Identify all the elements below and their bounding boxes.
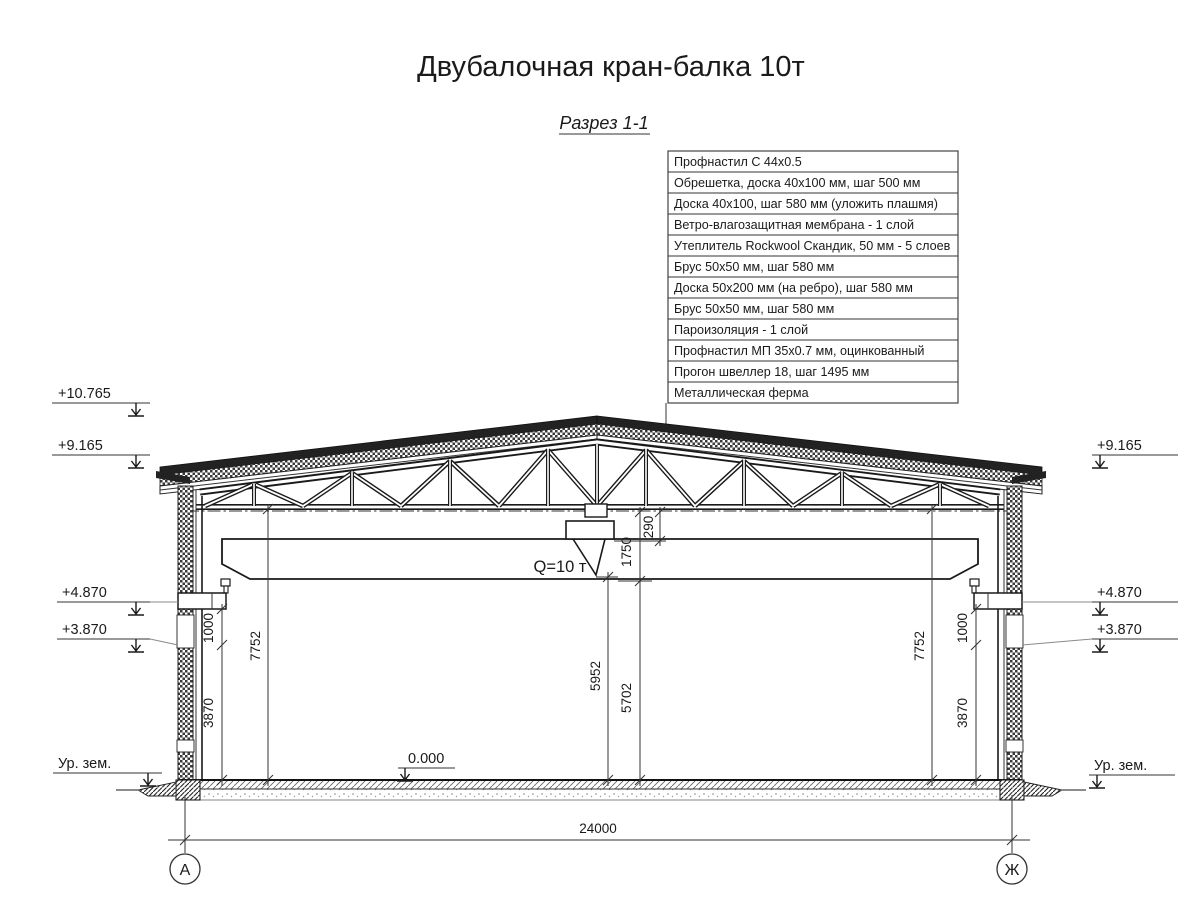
wall-left-joint xyxy=(177,615,194,648)
rail-mount-plate xyxy=(585,504,607,517)
dim-beam-zone: 1750 xyxy=(619,537,634,567)
spec-row: Доска 50х200 мм (на ребро), шаг 580 мм xyxy=(674,281,913,295)
elev-right-corbel: +3.870 xyxy=(1097,622,1142,638)
dim-truss-clearance-left: 7752 xyxy=(248,631,263,661)
floor-base xyxy=(196,789,1004,800)
crane-wheel-right xyxy=(970,579,979,586)
dim-rail-to-corbel-right: 1000 xyxy=(955,613,970,643)
crane-bridge: Q=10 т xyxy=(178,521,1022,609)
grid-axes: А Ж xyxy=(170,854,1027,884)
spec-row: Пароизоляция - 1 слой xyxy=(674,323,808,337)
elev-floor-zero: 0.000 xyxy=(408,751,444,767)
dim-hook-height: 5952 xyxy=(588,661,603,691)
apron-right xyxy=(1024,782,1062,796)
spec-row: Утеплитель Rockwool Скандик, 50 мм - 5 с… xyxy=(674,239,951,253)
dim-corbel-to-floor-left: 3870 xyxy=(201,698,216,728)
crane-wheel-left xyxy=(221,579,230,586)
spec-row: Профнастил МП 35х0.7 мм, оцинкованный xyxy=(674,344,924,358)
floor-screed xyxy=(178,780,1022,789)
floor xyxy=(116,780,1086,800)
drawing-sheet: Двубалочная кран-балка 10т Разрез 1-1 Пр… xyxy=(0,0,1200,900)
apron-left xyxy=(138,782,176,796)
spec-row: Обрешетка, доска 40х100 мм, шаг 500 мм xyxy=(674,176,920,190)
section-label: Разрез 1-1 xyxy=(559,113,648,133)
wall-left-joint-2 xyxy=(177,740,194,752)
runway-corbel-right xyxy=(974,593,1022,609)
elev-left-roof-top: +10.765 xyxy=(58,386,111,402)
crane-trolley xyxy=(566,521,614,539)
spec-table: Профнастил С 44х0.5 Обрешетка, доска 40х… xyxy=(666,151,958,428)
elev-right-ground: Ур. зем. xyxy=(1094,758,1147,774)
crane-wheel-right-pin xyxy=(972,586,976,593)
dim-corbel-to-floor-right: 3870 xyxy=(955,698,970,728)
spec-row: Брус 50х50 мм, шаг 580 мм xyxy=(674,260,834,274)
section-drawing: Двубалочная кран-балка 10т Разрез 1-1 Пр… xyxy=(0,0,1200,900)
crane-capacity-label: Q=10 т xyxy=(534,558,587,576)
spec-row: Доска 40х100, шаг 580 мм (уложить плашмя… xyxy=(674,197,938,211)
elev-right-eave: +9.165 xyxy=(1097,438,1142,454)
dim-beam-bottom-clearance: 5702 xyxy=(619,683,634,713)
roof-insulation-right xyxy=(597,424,1042,486)
runway-corbel-left xyxy=(178,593,226,609)
page-title: Двубалочная кран-балка 10т xyxy=(417,51,805,83)
dim-truss-clearance-right: 7752 xyxy=(912,631,927,661)
dim-span: 24000 xyxy=(579,821,617,836)
elev-right-rail: +4.870 xyxy=(1097,585,1142,601)
wall-right-joint xyxy=(1006,615,1023,648)
elev-left-corbel: +3.870 xyxy=(62,622,107,638)
crane-wheel-left-pin xyxy=(224,586,228,593)
foundation-left xyxy=(176,780,200,800)
roof-insulation-left xyxy=(160,424,597,486)
spec-row: Прогон швеллер 18, шаг 1495 мм xyxy=(674,365,869,379)
wall-right-joint-2 xyxy=(1006,740,1023,752)
elev-left-rail: +4.870 xyxy=(62,585,107,601)
spec-row: Брус 50х50 мм, шаг 580 мм xyxy=(674,302,834,316)
spec-row: Ветро-влагозащитная мембрана - 1 слой xyxy=(674,218,914,232)
elev-left-ground: Ур. зем. xyxy=(58,756,111,772)
elev-left-eave: +9.165 xyxy=(58,438,103,454)
spec-row: Металлическая ферма xyxy=(674,386,809,400)
dim-rail-gap: 290 xyxy=(641,516,656,539)
axis-label-right: Ж xyxy=(1005,862,1020,879)
axis-label-left: А xyxy=(180,862,191,879)
spec-row: Профнастил С 44х0.5 xyxy=(674,155,802,169)
dim-rail-to-corbel-left: 1000 xyxy=(201,613,216,643)
